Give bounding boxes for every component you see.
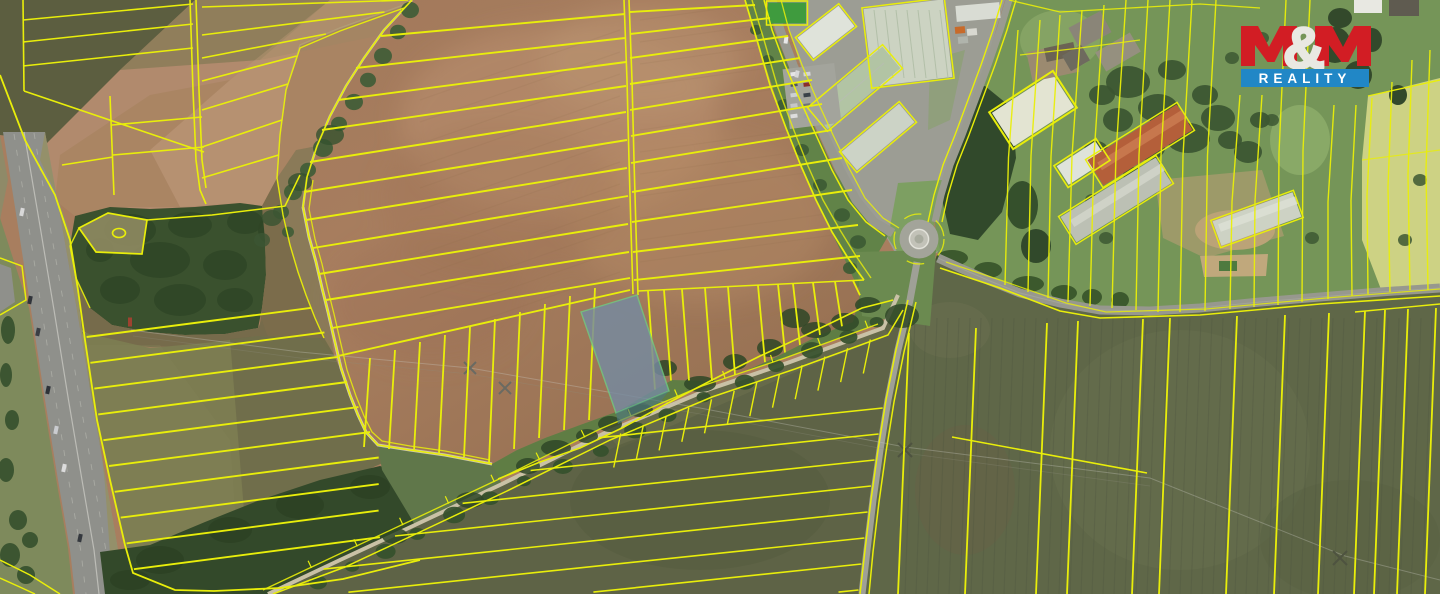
svg-text:REALITY: REALITY [1259,71,1352,86]
